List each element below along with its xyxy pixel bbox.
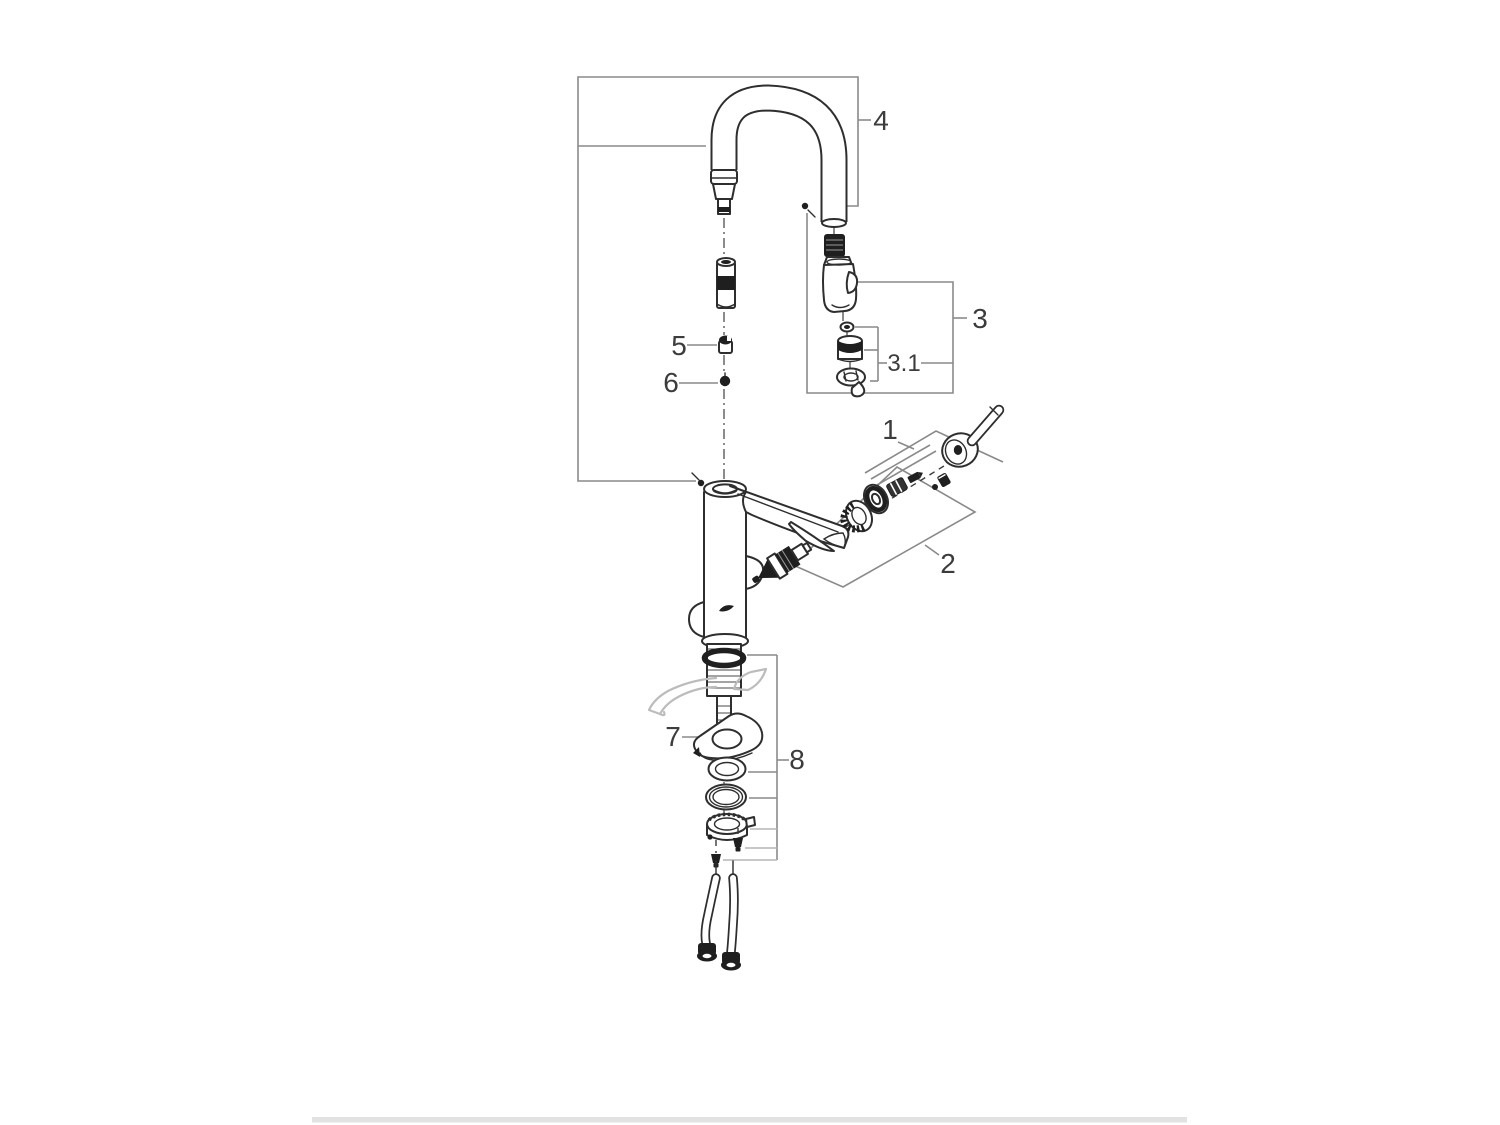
mousseur <box>838 336 862 362</box>
clamp-ring <box>707 814 755 840</box>
washer-bottom <box>706 785 746 810</box>
hose-connector-right <box>721 952 741 971</box>
callout-label-3: 3 <box>972 303 988 334</box>
callout-label-2: 2 <box>940 548 956 579</box>
callout-label-8: 8 <box>789 744 805 775</box>
spout-end-fitting <box>711 170 737 214</box>
hose-connector-left <box>697 943 717 962</box>
supply-hoses <box>697 861 741 971</box>
faucet-exploded-diagram-page: 1 2 3 3.1 4 5 6 7 8 <box>0 0 1500 1125</box>
gooseneck-spout <box>724 98 846 227</box>
callout-label-3-1: 3.1 <box>887 350 920 377</box>
faucet-exploded-diagram: 1 2 3 3.1 4 5 6 7 8 <box>0 0 1500 1125</box>
sprayhead-hose-nipple <box>824 234 845 257</box>
callout-label-6: 6 <box>663 367 679 398</box>
callout-label-5: 5 <box>671 330 687 361</box>
hose-connector <box>717 258 735 308</box>
washer-top <box>709 758 746 781</box>
handle-set-screw <box>932 472 951 490</box>
callout-label-4: 4 <box>873 105 889 136</box>
sprayhead <box>823 257 857 312</box>
callout-label-1: 1 <box>882 414 898 445</box>
adapter-nut <box>886 477 908 497</box>
screw-part-6 <box>720 373 730 386</box>
spout-holder-arm <box>730 486 848 551</box>
callout-label-7: 7 <box>665 721 681 752</box>
footer-divider-bar <box>312 1117 1187 1123</box>
check-valve <box>719 336 732 354</box>
spout-set-screw <box>692 473 704 486</box>
flow-restrictor-clip <box>837 369 865 397</box>
sprayhead-o-ring <box>841 323 854 332</box>
handle-lever <box>937 407 999 472</box>
mounting-bracket <box>693 714 762 761</box>
sprayhead-set-screw <box>802 203 815 217</box>
